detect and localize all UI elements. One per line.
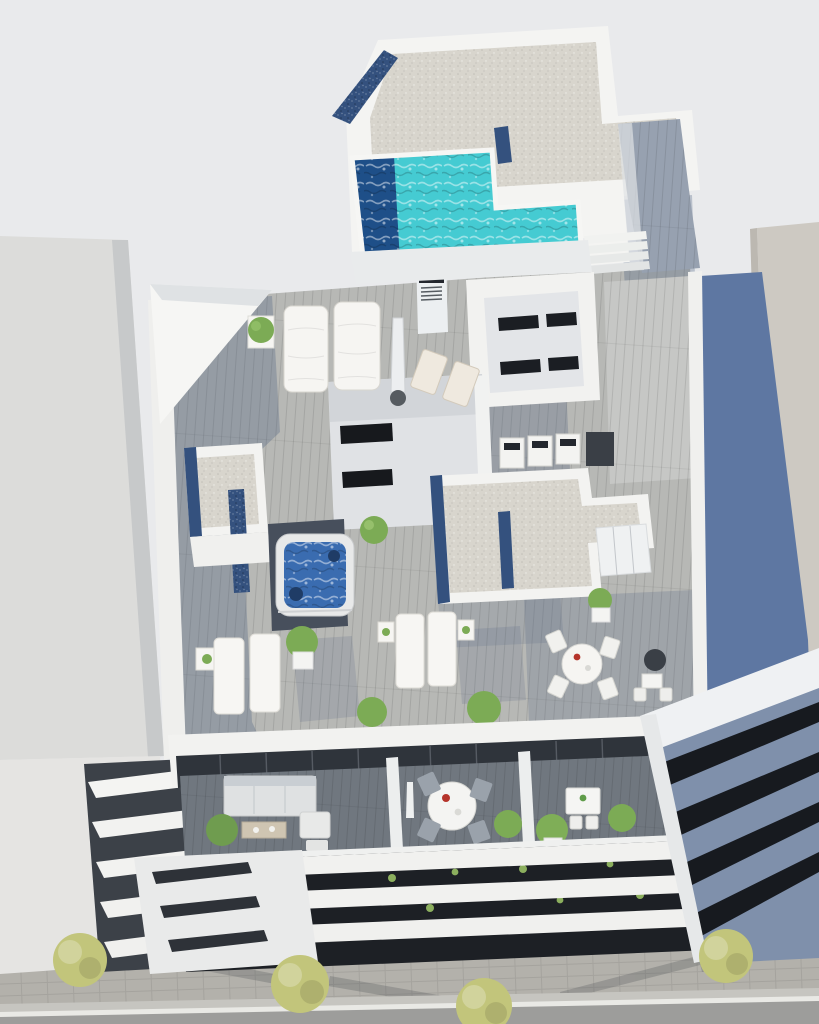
dark-parasol bbox=[644, 649, 666, 671]
table-plant bbox=[202, 654, 212, 664]
gravel-texture bbox=[196, 454, 259, 528]
plant-pot bbox=[592, 608, 610, 622]
table-plant bbox=[462, 626, 470, 634]
sun-lounger bbox=[250, 634, 280, 712]
red-table-accent bbox=[442, 794, 450, 802]
tableware bbox=[585, 665, 591, 671]
plant-highlight bbox=[251, 321, 261, 331]
closed-parasol bbox=[391, 318, 405, 392]
jacuzzi-seat bbox=[289, 587, 303, 601]
render-canvas bbox=[0, 0, 819, 1024]
tableware bbox=[455, 809, 462, 816]
bistro-chair bbox=[634, 688, 646, 701]
plant-highlight bbox=[364, 520, 374, 530]
parasol-base bbox=[390, 390, 406, 406]
sun-lounger bbox=[428, 612, 456, 686]
ottoman bbox=[306, 840, 328, 851]
tableware bbox=[269, 826, 275, 832]
potted-plant bbox=[248, 317, 274, 343]
potted-plant bbox=[608, 804, 636, 832]
table-plant bbox=[580, 795, 587, 802]
glass-sliding-doors bbox=[596, 524, 651, 576]
round-dining-table bbox=[562, 644, 602, 684]
coffee-table bbox=[242, 822, 286, 838]
plant-pot bbox=[293, 652, 313, 669]
aerial-render bbox=[0, 0, 819, 1024]
bistro-chair bbox=[570, 816, 582, 829]
tree bbox=[53, 933, 107, 987]
tree bbox=[699, 929, 753, 983]
skylight-window bbox=[340, 423, 393, 444]
sun-lounger bbox=[214, 638, 244, 714]
potted-plant bbox=[206, 814, 238, 846]
bistro-table bbox=[642, 674, 662, 688]
right-walkway-planks bbox=[604, 276, 696, 484]
red-table-accent bbox=[574, 654, 581, 661]
tableware bbox=[253, 827, 259, 833]
jacuzzi-seat bbox=[328, 550, 340, 562]
white-wall-piece bbox=[190, 532, 272, 567]
table-plant bbox=[382, 628, 390, 636]
bistro-chair bbox=[660, 688, 672, 701]
armchair bbox=[300, 812, 330, 838]
sun-lounger bbox=[396, 614, 424, 688]
potted-plant bbox=[360, 516, 388, 544]
lightwell-inner bbox=[484, 291, 584, 393]
potted-plant bbox=[357, 697, 387, 727]
skylight-window bbox=[342, 469, 393, 488]
potted-plant bbox=[494, 810, 522, 838]
sofa-back-cushions bbox=[224, 776, 316, 786]
closed-parasol bbox=[406, 782, 414, 818]
tree bbox=[271, 955, 329, 1013]
potted-plant bbox=[467, 691, 501, 725]
bistro-chair bbox=[586, 816, 598, 829]
dark-unit bbox=[586, 432, 614, 466]
